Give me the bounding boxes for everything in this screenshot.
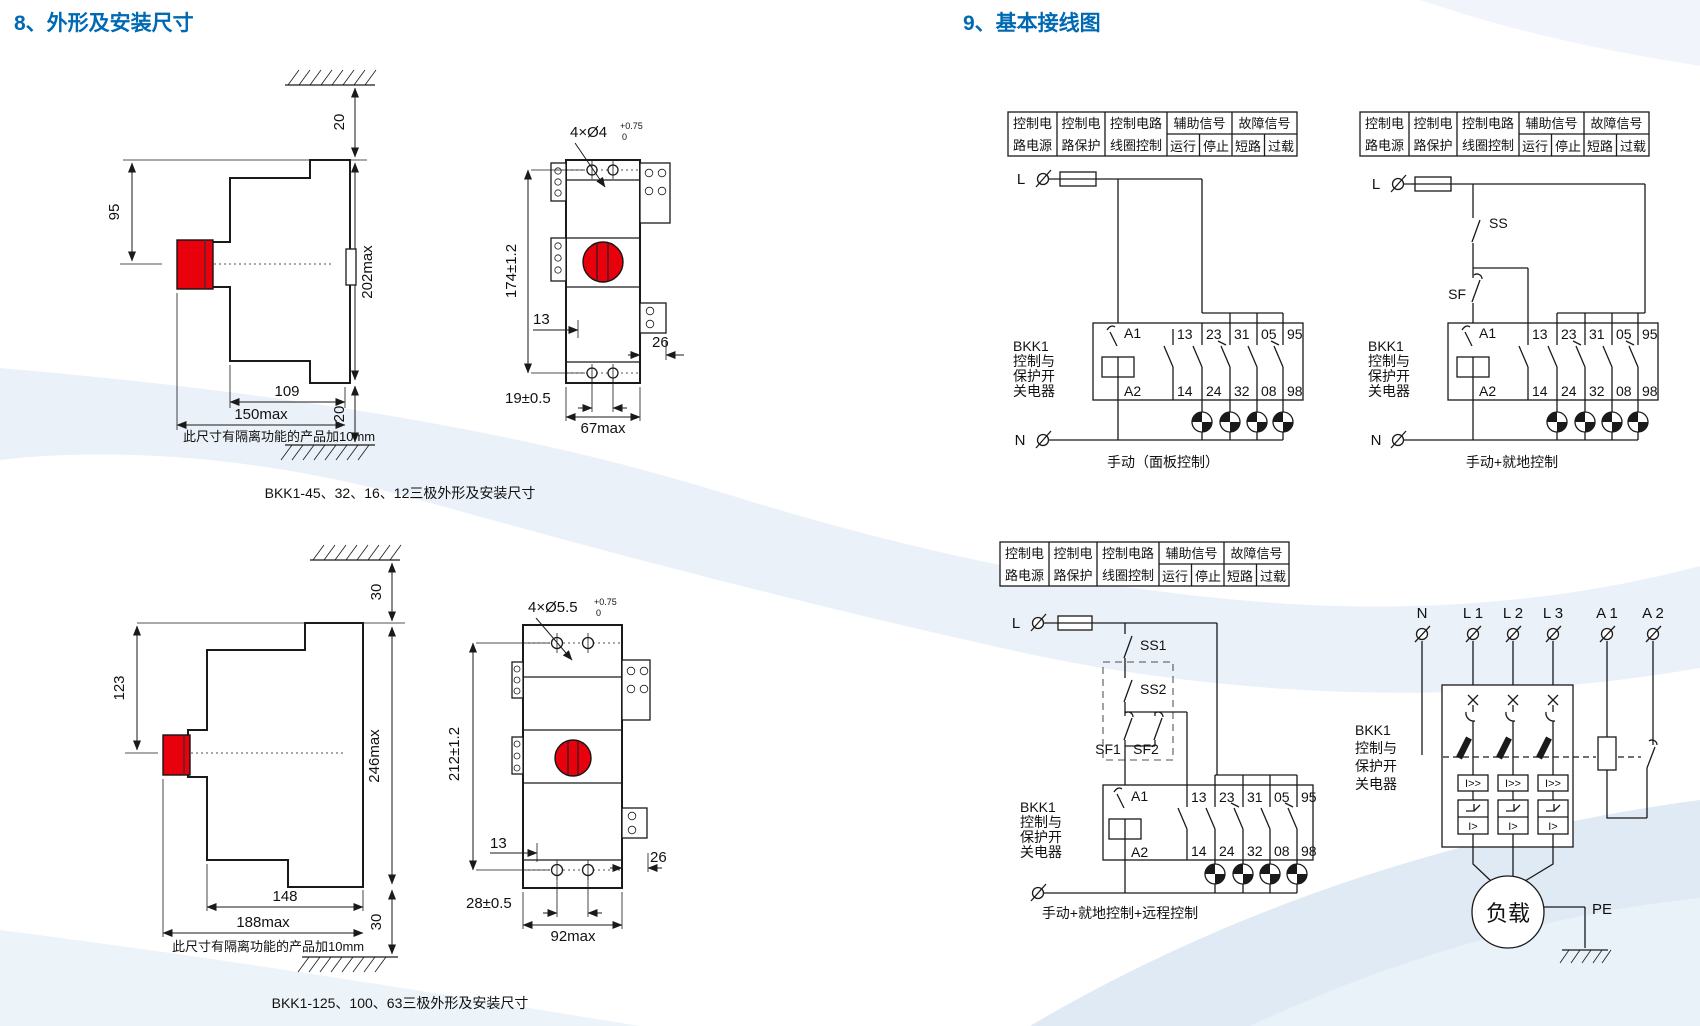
indicator-lamps — [1547, 412, 1648, 432]
overload-trip-label: I> — [1508, 821, 1517, 833]
phase-label: L — [1012, 615, 1020, 632]
din-rail-clip — [346, 249, 356, 285]
start-switch-and-sealin — [1472, 268, 1528, 323]
dim-gap-top: 30 — [368, 584, 385, 601]
th-fault-signal: 故障信号 — [1238, 116, 1290, 131]
device-label-3: 保护开 — [1355, 758, 1397, 774]
floor-hatch — [298, 957, 386, 972]
terminal-a1: A 1 — [1596, 605, 1618, 622]
th-ctrl-supply-2: 路电源 — [1365, 138, 1404, 153]
dim-width: 92max — [550, 928, 596, 945]
th-ctrl-supply-1: 控制电 — [1005, 546, 1044, 561]
th-stop: 停止 — [1203, 139, 1229, 154]
th-short: 短路 — [1235, 139, 1261, 154]
th-ctrl-supply-2: 路电源 — [1013, 138, 1052, 153]
contact-label: 98 — [1642, 383, 1658, 399]
instantaneous-trip-label: I>> — [1505, 778, 1521, 790]
device-label-2: 控制与 — [1013, 353, 1055, 369]
th-ctrl-protect-2: 路保护 — [1061, 138, 1100, 153]
contact-label: 14 — [1191, 843, 1207, 859]
dim-gap-bottom: 20 — [331, 406, 348, 423]
phase-label: L — [1372, 176, 1380, 193]
th-fault-signal: 故障信号 — [1590, 116, 1642, 131]
contact-label: 14 — [1532, 383, 1548, 399]
dim-depth-max: 150max — [234, 406, 288, 423]
contact-label: 14 — [1177, 383, 1193, 399]
catalog-page: 8、外形及安装尺寸 9、基本接线图 20 202max 20 95 109 15… — [0, 0, 1700, 1026]
contact-label: 24 — [1561, 383, 1577, 399]
th-coil-ctrl-2: 线圈控制 — [1102, 568, 1154, 583]
diagram-caption: 手动+就地控制 — [1466, 454, 1558, 470]
device-label-2: 控制与 — [1020, 814, 1062, 830]
contact-label: 32 — [1234, 383, 1250, 399]
caption-large-frames: BKK1-125、100、63三极外形及安装尺寸 — [272, 995, 529, 1011]
dim-gap-top: 20 — [331, 114, 348, 131]
dim-width: 67max — [580, 420, 626, 437]
th-overload: 过载 — [1268, 139, 1294, 154]
contact-label: 98 — [1301, 843, 1317, 859]
contact-label: 13 — [1532, 326, 1548, 342]
start2-label: SF2 — [1133, 741, 1159, 757]
hole-callout: 4×Ø5.5 — [528, 599, 578, 616]
coil-terminal-a1: A1 — [1124, 325, 1141, 341]
contact-label: 05 — [1261, 326, 1277, 342]
th-stop: 停止 — [1195, 569, 1221, 584]
device-label-4: 关电器 — [1355, 776, 1397, 792]
th-coil-ctrl-1: 控制电路 — [1110, 116, 1162, 131]
th-ctrl-protect-2: 路保护 — [1053, 568, 1092, 583]
th-fault-signal: 故障信号 — [1230, 546, 1282, 561]
caption-small-frames: BKK1-45、32、16、12三极外形及安装尺寸 — [265, 485, 536, 501]
dim-tab: 26 — [650, 849, 667, 866]
remote-coil — [1598, 737, 1616, 770]
ceiling-hatch — [313, 545, 401, 560]
neutral-label: N — [1371, 432, 1382, 449]
wiring-diagram-local: L SS SF BKK1 控制与 保护开 关电器 A1 A2 13 23 31 … — [1368, 175, 1658, 470]
device-label-3: 保护开 — [1020, 829, 1062, 845]
drawing-side-view-large: 30 246max 30 123 148 188max 此尺寸有隔离功能的产品加… — [111, 545, 405, 972]
contact-label: 13 — [1191, 789, 1207, 805]
start-switch-label: SF — [1448, 286, 1466, 302]
red-front-button — [555, 740, 591, 776]
extension-lines-width — [566, 387, 640, 421]
contact-label: 95 — [1287, 326, 1303, 342]
supply-wires — [1049, 179, 1283, 323]
dim-offset: 13 — [490, 835, 507, 852]
tolerance-upper: +0.75 — [620, 121, 643, 131]
stop-switch-label: SS — [1489, 215, 1508, 231]
device-label-3: 保护开 — [1013, 368, 1055, 384]
device-label-1: BKK1 — [1013, 338, 1049, 354]
wave-band-top-right — [1420, 0, 1700, 66]
wiring-diagram-manual: L BKK1 控制与 保护开 关电器 A1 A2 13 23 31 05 95 … — [1013, 170, 1303, 470]
dim-depth: 148 — [272, 888, 297, 905]
th-aux-signal: 辅助信号 — [1165, 546, 1217, 561]
section8-title: 8、外形及安装尺寸 — [14, 11, 194, 35]
diagram-caption: 手动+就地控制+远程控制 — [1042, 905, 1198, 921]
page-canvas: 8、外形及安装尺寸 9、基本接线图 20 202max 20 95 109 15… — [0, 0, 1700, 1026]
tolerance-lower: 0 — [622, 132, 627, 142]
coil-terminal-a2: A2 — [1479, 383, 1496, 399]
coil-terminal-a2: A2 — [1131, 844, 1148, 860]
signal-table-2: 控制电 路电源 控制电 路保护 控制电路 线圈控制 辅助信号 运行 停止 故障信… — [1360, 112, 1649, 156]
section9-title: 9、基本接线图 — [963, 11, 1101, 35]
dim-offset: 13 — [533, 311, 550, 328]
contact-label: 23 — [1561, 326, 1577, 342]
dim-height-max: 202max — [359, 245, 376, 299]
coil-terminal-a1: A1 — [1479, 325, 1496, 341]
contact-label: 08 — [1261, 383, 1277, 399]
isolation-note: 此尺寸有隔离功能的产品加10mm — [172, 939, 364, 954]
local-stop-label: SS2 — [1140, 681, 1167, 697]
th-aux-signal: 辅助信号 — [1173, 116, 1225, 131]
dim-height: 174±1.2 — [503, 244, 520, 298]
device-profile — [212, 160, 350, 383]
device-label-1: BKK1 — [1368, 338, 1404, 354]
th-run: 运行 — [1162, 569, 1188, 584]
extension-lines-width — [523, 892, 622, 929]
th-coil-ctrl-1: 控制电路 — [1462, 116, 1514, 131]
th-coil-ctrl-2: 线圈控制 — [1462, 138, 1514, 153]
terminal-l2: L 2 — [1503, 605, 1523, 622]
terminal-n: N — [1417, 605, 1428, 622]
load-label: 负载 — [1486, 901, 1530, 926]
tolerance-lower: 0 — [596, 608, 601, 618]
dim-pitch: 28±0.5 — [466, 895, 512, 912]
dim-depth: 109 — [274, 383, 299, 400]
dim-pitch: 19±0.5 — [505, 390, 551, 407]
th-ctrl-supply-1: 控制电 — [1013, 116, 1052, 131]
th-ctrl-supply-2: 路电源 — [1005, 568, 1044, 583]
pe-label: PE — [1592, 901, 1612, 918]
dim-depth-max: 188max — [236, 914, 290, 931]
device-label-4: 关电器 — [1020, 844, 1062, 860]
contact-label: 95 — [1642, 326, 1658, 342]
red-button — [163, 735, 190, 775]
contact-label: 05 — [1616, 326, 1632, 342]
phase-label: L — [1017, 171, 1025, 188]
red-button — [177, 240, 213, 289]
contact-label: 95 — [1301, 789, 1317, 805]
th-ctrl-protect-2: 路保护 — [1413, 138, 1452, 153]
instantaneous-trip-label: I>> — [1465, 778, 1481, 790]
device-label-2: 控制与 — [1355, 740, 1397, 756]
th-coil-ctrl-1: 控制电路 — [1102, 546, 1154, 561]
overload-trip-label: I> — [1548, 821, 1557, 833]
start1-label: SF1 — [1095, 741, 1121, 757]
contact-label: 13 — [1177, 326, 1193, 342]
contact-label: 31 — [1247, 789, 1263, 805]
terminal-tab — [622, 660, 650, 720]
device-label-1: BKK1 — [1020, 799, 1056, 815]
dim-gap-bottom: 30 — [368, 914, 385, 931]
isolation-note: 此尺寸有隔离功能的产品加10mm — [183, 429, 375, 444]
contact-label: 32 — [1247, 843, 1263, 859]
contact-label: 32 — [1589, 383, 1605, 399]
contact-label: 24 — [1219, 843, 1235, 859]
local-stop-switch — [1124, 680, 1132, 712]
th-stop: 停止 — [1555, 139, 1581, 154]
extension-lines-tab — [622, 853, 648, 872]
th-ctrl-protect-1: 控制电 — [1053, 546, 1092, 561]
overload-trip-label: I> — [1468, 821, 1477, 833]
terminal-a2: A 2 — [1642, 605, 1664, 622]
neutral-label: N — [1015, 432, 1026, 449]
th-short: 短路 — [1587, 139, 1613, 154]
dim-height-max: 246max — [366, 729, 383, 783]
stop-switch — [1472, 220, 1480, 268]
contact-label: 23 — [1219, 789, 1235, 805]
indicator-lamps — [1192, 412, 1293, 432]
terminal-tab — [551, 238, 566, 281]
device-profile — [188, 623, 363, 887]
signal-table-1: 控制电 路电源 控制电 路保护 控制电路 线圈控制 辅助信号 运行 停止 故障信… — [1008, 112, 1297, 156]
contact-label: 23 — [1206, 326, 1222, 342]
contact-label: 08 — [1616, 383, 1632, 399]
drawing-front-view-small: 4×Ø4 +0.75 0 174±1.2 13 26 19±0.5 67max — [503, 121, 684, 437]
dim-button-height: 95 — [106, 204, 123, 221]
remote-stop-label: SS1 — [1140, 637, 1167, 653]
th-overload: 过载 — [1620, 139, 1646, 154]
coil-terminal-a2: A2 — [1124, 383, 1141, 399]
contact-label: 98 — [1287, 383, 1303, 399]
contact-label: 24 — [1206, 383, 1222, 399]
tolerance-upper: +0.75 — [594, 597, 617, 607]
coil-terminal-a1: A1 — [1131, 788, 1148, 804]
dim-button-height: 123 — [111, 675, 128, 700]
contact-label: 31 — [1589, 326, 1605, 342]
contact-label: 05 — [1274, 789, 1290, 805]
drawing-front-view-large: 4×Ø5.5 +0.75 0 212±1.2 13 26 28±0.5 92ma… — [446, 597, 667, 945]
hole-callout: 4×Ø4 — [570, 124, 607, 141]
th-ctrl-supply-1: 控制电 — [1365, 116, 1404, 131]
neutral-wire — [1036, 431, 1283, 448]
th-aux-signal: 辅助信号 — [1525, 116, 1577, 131]
th-run: 运行 — [1170, 139, 1196, 154]
terminal-l1: L 1 — [1463, 605, 1483, 622]
contact-label: 08 — [1274, 843, 1290, 859]
device-label-4: 关电器 — [1013, 383, 1055, 399]
terminal-tab — [640, 303, 666, 333]
th-ctrl-protect-1: 控制电 — [1413, 116, 1452, 131]
dim-height: 212±1.2 — [446, 727, 463, 781]
instantaneous-trip-label: I>> — [1545, 778, 1561, 790]
diagram-caption: 手动（面板控制） — [1107, 454, 1219, 470]
return-wire — [1031, 884, 1297, 901]
terminal-l3: L 3 — [1543, 605, 1563, 622]
terminal-tab — [551, 163, 566, 201]
supply-wires — [1404, 184, 1645, 323]
terminal-tab — [622, 808, 647, 838]
th-short: 短路 — [1227, 569, 1253, 584]
device-label-1: BKK1 — [1355, 722, 1391, 738]
device-label-2: 控制与 — [1368, 353, 1410, 369]
neutral-wire — [1391, 431, 1638, 448]
device-label-3: 保护开 — [1368, 368, 1410, 384]
red-front-button — [583, 242, 623, 282]
ceiling-hatch — [288, 70, 376, 85]
th-ctrl-protect-1: 控制电 — [1061, 116, 1100, 131]
contact-label: 31 — [1234, 326, 1250, 342]
th-coil-ctrl-2: 线圈控制 — [1110, 138, 1162, 153]
device-label-4: 关电器 — [1368, 383, 1410, 399]
signal-table-3: 控制电 路电源 控制电 路保护 控制电路 线圈控制 辅助信号 运行 停止 故障信… — [1000, 542, 1289, 586]
th-run: 运行 — [1522, 139, 1548, 154]
th-overload: 过载 — [1260, 569, 1286, 584]
indicator-lamps — [1205, 864, 1307, 884]
